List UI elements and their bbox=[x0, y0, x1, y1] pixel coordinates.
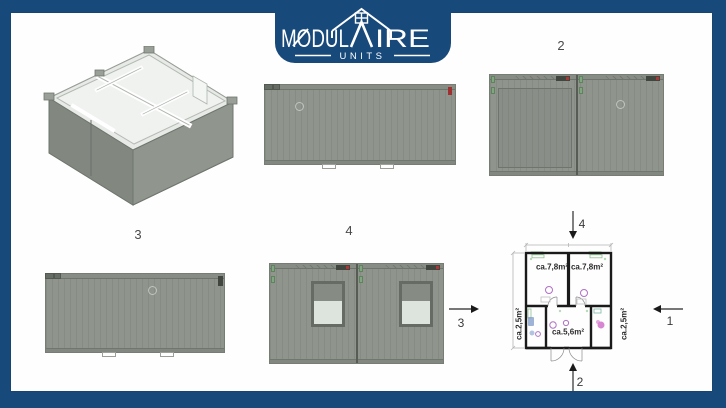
brand-plate bbox=[218, 276, 223, 286]
corner-fitting bbox=[54, 273, 61, 279]
view-direction-arrow-right-icon bbox=[449, 305, 479, 313]
direction-label-4: 4 bbox=[579, 217, 586, 231]
view-direction-arrow-left-icon bbox=[653, 305, 683, 313]
window-with-shutter bbox=[311, 281, 345, 327]
container-3d-view bbox=[41, 46, 239, 206]
room-area-label: ca.2,5m² bbox=[515, 308, 524, 340]
container-foot bbox=[102, 352, 116, 357]
roller-shutter bbox=[402, 284, 430, 301]
red-plate-detail bbox=[448, 87, 452, 95]
corner-fitting bbox=[264, 84, 273, 90]
corner-fitting-green bbox=[579, 87, 583, 94]
corner-fitting-green bbox=[491, 87, 495, 94]
direction-label-3: 3 bbox=[458, 316, 465, 330]
container-side-view-bottom bbox=[45, 273, 225, 353]
vent-detail bbox=[148, 286, 157, 295]
brand-plate bbox=[556, 76, 570, 81]
container-foot bbox=[322, 164, 336, 169]
catalog-sheet: 2 3 4 bbox=[10, 12, 713, 392]
container-foot bbox=[380, 164, 394, 169]
direction-label-2: 2 bbox=[577, 375, 584, 389]
container-top-rail bbox=[265, 85, 455, 90]
brand-plate bbox=[426, 265, 440, 270]
brand-plate bbox=[336, 265, 350, 270]
door-panel bbox=[498, 88, 572, 168]
roller-shutter bbox=[314, 284, 342, 301]
window-with-shutter bbox=[399, 281, 433, 327]
container-bottom-edge bbox=[265, 160, 455, 164]
brand-badge: MODUL IRE UNITS bbox=[275, 0, 451, 63]
lifting-hook-detail bbox=[382, 265, 428, 269]
room-area-label: ca.7,8m² bbox=[571, 263, 603, 272]
room-area-label: ca.7,8m² bbox=[536, 263, 568, 272]
room-area-label: ca.5,6m² bbox=[552, 328, 584, 337]
vent-detail bbox=[295, 102, 304, 111]
corner-fitting bbox=[273, 84, 280, 90]
module-seam bbox=[576, 75, 578, 175]
corner-fitting-green bbox=[579, 76, 583, 83]
corner-fitting-green bbox=[271, 276, 275, 283]
brand-subtitle: UNITS bbox=[340, 51, 386, 62]
brand-logo: MODUL IRE UNITS bbox=[275, 0, 451, 63]
view-label-4: 4 bbox=[345, 223, 352, 238]
module-seam bbox=[356, 264, 358, 363]
container-door-view bbox=[489, 74, 664, 176]
floor-plan-drawing bbox=[501, 237, 631, 369]
wordmark-right: IRE bbox=[375, 25, 430, 53]
lifting-hook-detail bbox=[512, 76, 558, 80]
lifting-hook-detail bbox=[602, 76, 648, 80]
corner-fitting-green bbox=[491, 76, 495, 83]
container-side-view-top bbox=[264, 84, 456, 165]
room-area-label: ca.2,5m² bbox=[620, 308, 629, 340]
view-direction-arrow-down-icon bbox=[569, 211, 577, 239]
letter-a-glyph bbox=[351, 22, 372, 47]
wordmark-left: MODUL bbox=[281, 25, 349, 53]
lifting-hook-detail bbox=[292, 265, 338, 269]
corner-fitting-green bbox=[271, 265, 275, 272]
corner-fitting-green bbox=[359, 276, 363, 283]
view-label-3: 3 bbox=[134, 227, 141, 242]
container-bottom-edge bbox=[46, 348, 224, 352]
vent-detail bbox=[616, 100, 625, 109]
view-label-2: 2 bbox=[557, 38, 564, 53]
container-window-view bbox=[269, 263, 444, 364]
corner-fitting bbox=[45, 273, 54, 279]
corner-fitting-green bbox=[359, 265, 363, 272]
direction-label-1: 1 bbox=[667, 314, 674, 328]
container-top-rail bbox=[46, 274, 224, 279]
brand-plate bbox=[646, 76, 660, 81]
container-foot bbox=[160, 352, 174, 357]
